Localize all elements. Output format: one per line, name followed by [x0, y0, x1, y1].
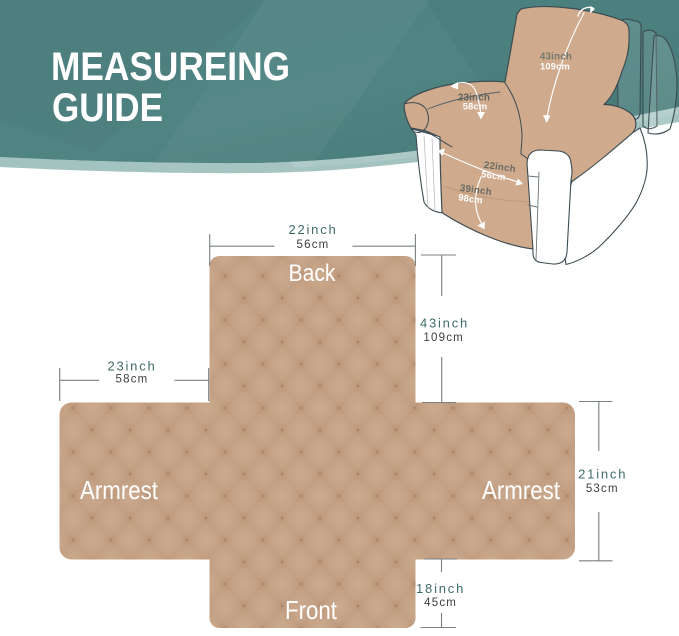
svg-text:Front: Front — [285, 595, 338, 625]
svg-text:58cm: 58cm — [463, 101, 488, 111]
svg-text:MEASUREING: MEASUREING — [51, 45, 290, 89]
svg-text:109cm: 109cm — [540, 61, 570, 71]
svg-text:22inch: 22inch — [288, 222, 337, 237]
svg-text:45cm: 45cm — [424, 597, 457, 609]
svg-text:21inch: 21inch — [578, 467, 627, 482]
svg-text:58cm: 58cm — [116, 373, 149, 385]
svg-text:Back: Back — [289, 260, 337, 287]
svg-text:43inch: 43inch — [420, 315, 469, 330]
svg-text:23inch: 23inch — [107, 358, 156, 373]
svg-text:Armrest: Armrest — [482, 475, 561, 505]
svg-text:Armrest: Armrest — [80, 475, 159, 505]
svg-text:GUIDE: GUIDE — [52, 86, 163, 130]
svg-text:53cm: 53cm — [586, 483, 619, 495]
svg-text:109cm: 109cm — [423, 332, 464, 344]
svg-text:56cm: 56cm — [297, 239, 330, 251]
svg-text:18inch: 18inch — [416, 581, 465, 596]
